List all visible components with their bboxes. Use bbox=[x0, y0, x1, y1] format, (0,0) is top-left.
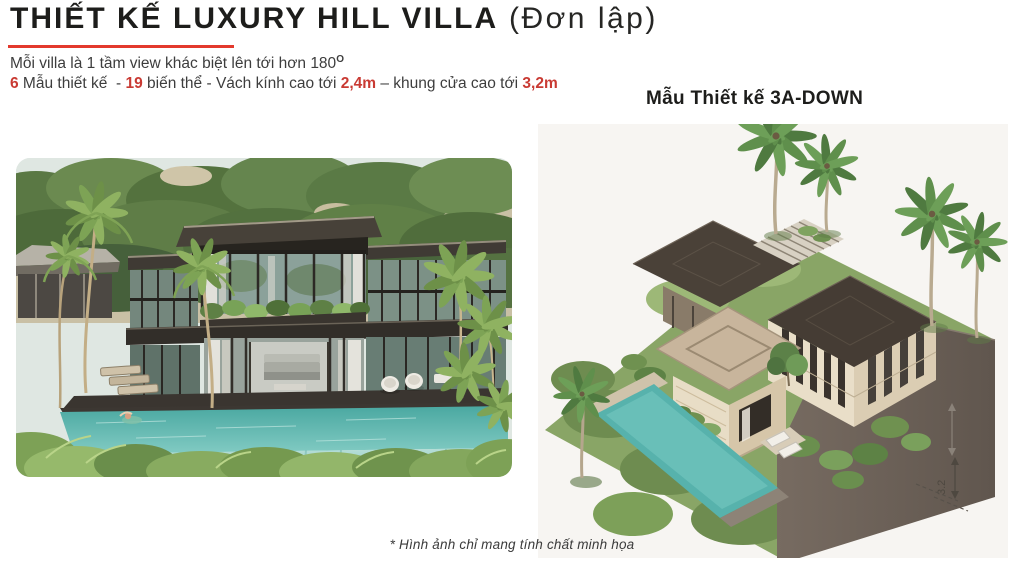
villa-photo bbox=[16, 158, 512, 477]
specs-line: 6 Mẫu thiết kế - 19 biến thể - Vách kính… bbox=[10, 75, 558, 93]
spec-count-models: 6 bbox=[10, 75, 19, 92]
villa-photo-art bbox=[16, 158, 512, 477]
tagline: Mỗi villa là 1 tầm view khác biệt lên tớ… bbox=[10, 54, 344, 73]
spec-glass-height: 2,4m bbox=[341, 75, 376, 92]
spec-door-height: 3,2m bbox=[522, 75, 557, 92]
page-title: THIẾT KẾ LUXURY HILL VILLA (Đơn lập) bbox=[10, 2, 658, 36]
spec-text-1: Mẫu thiết kế - bbox=[19, 75, 126, 92]
villa-3d-render: 3.2 bbox=[538, 124, 1008, 558]
spec-text-3: – khung cửa cao tới bbox=[376, 75, 522, 92]
title-underline bbox=[8, 45, 234, 48]
design-model-heading: Mẫu Thiết kế 3A-DOWN bbox=[646, 88, 863, 110]
page-title-suffix: (Đơn lập) bbox=[498, 2, 658, 35]
villa-3d-render-art: 3.2 bbox=[538, 124, 1008, 558]
page-title-main: THIẾT KẾ LUXURY HILL VILLA bbox=[10, 2, 498, 35]
disclaimer-caption: * Hình ảnh chỉ mang tính chất minh họa bbox=[0, 537, 1024, 552]
spec-text-2: biến thể - Vách kính cao tới bbox=[143, 75, 341, 92]
degree-superscript: O bbox=[336, 54, 344, 65]
slide-page: THIẾT KẾ LUXURY HILL VILLA (Đơn lập) Mỗi… bbox=[0, 0, 1024, 576]
slide: { "header": { "title_main": "THIẾT KẾ LU… bbox=[0, 0, 1024, 576]
tagline-text: Mỗi villa là 1 tầm view khác biệt lên tớ… bbox=[10, 55, 336, 72]
spec-count-variants: 19 bbox=[125, 75, 142, 92]
